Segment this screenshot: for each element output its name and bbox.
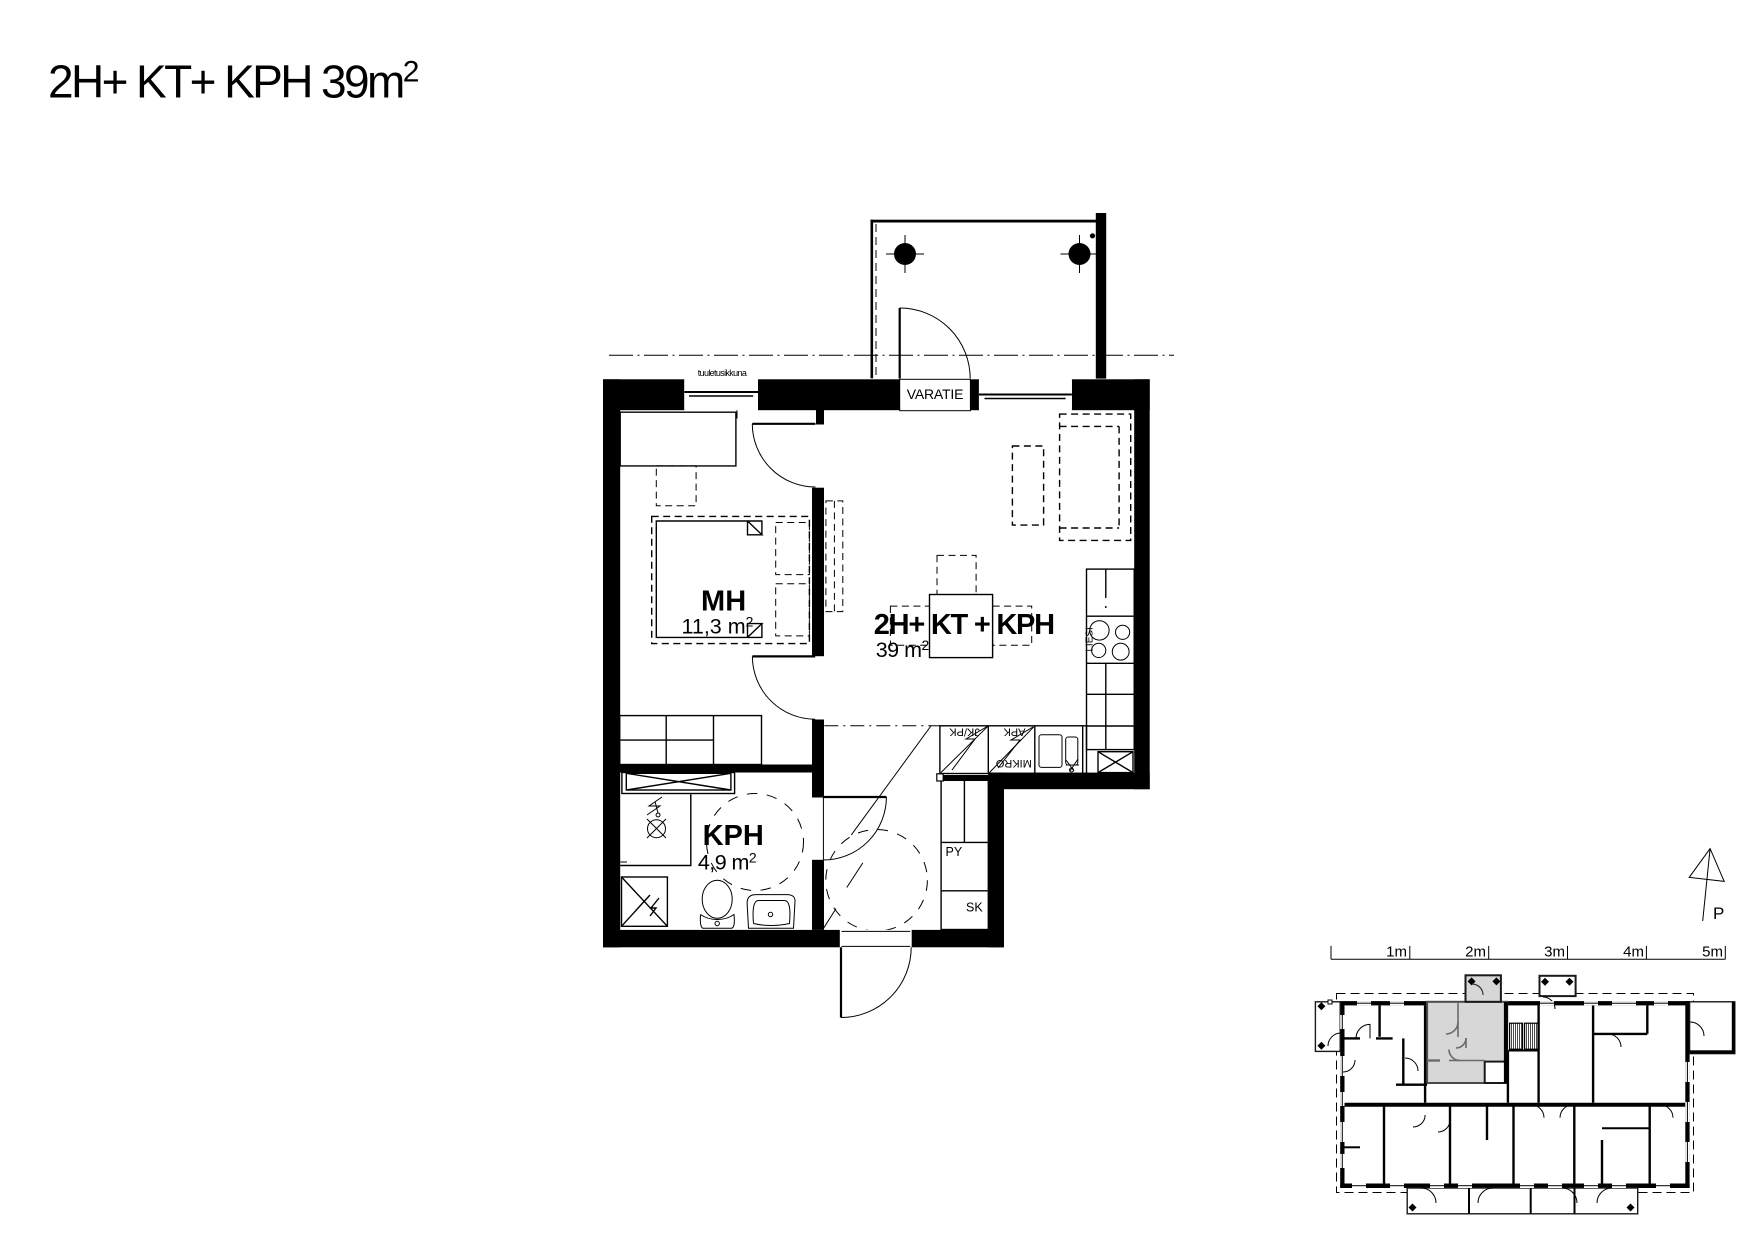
svg-text:2H+ KT + KPH: 2H+ KT + KPH — [874, 609, 1054, 641]
svg-text:KPH: KPH — [703, 820, 764, 852]
svg-text:PY: PY — [946, 845, 963, 859]
svg-text:39 m2: 39 m2 — [876, 637, 930, 662]
svg-text:MH: MH — [701, 586, 746, 618]
svg-text:APK: APK — [1003, 726, 1026, 738]
svg-text:LIESI: LIESI — [1084, 627, 1095, 651]
svg-text:SK: SK — [966, 901, 983, 915]
svg-text:4,9 m2: 4,9 m2 — [698, 850, 757, 875]
svg-text:1m: 1m — [1386, 944, 1407, 961]
svg-text:11,3 m2: 11,3 m2 — [682, 614, 754, 639]
svg-text:MIKRO: MIKRO — [995, 757, 1032, 769]
svg-text:VARATIE: VARATIE — [907, 386, 963, 402]
svg-text:JK/PK: JK/PK — [949, 726, 980, 738]
svg-text:3m: 3m — [1544, 944, 1565, 961]
svg-text:5m: 5m — [1702, 944, 1723, 961]
svg-text:2m: 2m — [1465, 944, 1486, 961]
svg-text:tuuletusikkuna: tuuletusikkuna — [698, 368, 747, 378]
svg-text:2H+ KT+ KPH 39m2: 2H+ KT+ KPH 39m2 — [48, 56, 419, 108]
svg-text:P: P — [1713, 904, 1724, 923]
svg-text:4m: 4m — [1623, 944, 1644, 961]
